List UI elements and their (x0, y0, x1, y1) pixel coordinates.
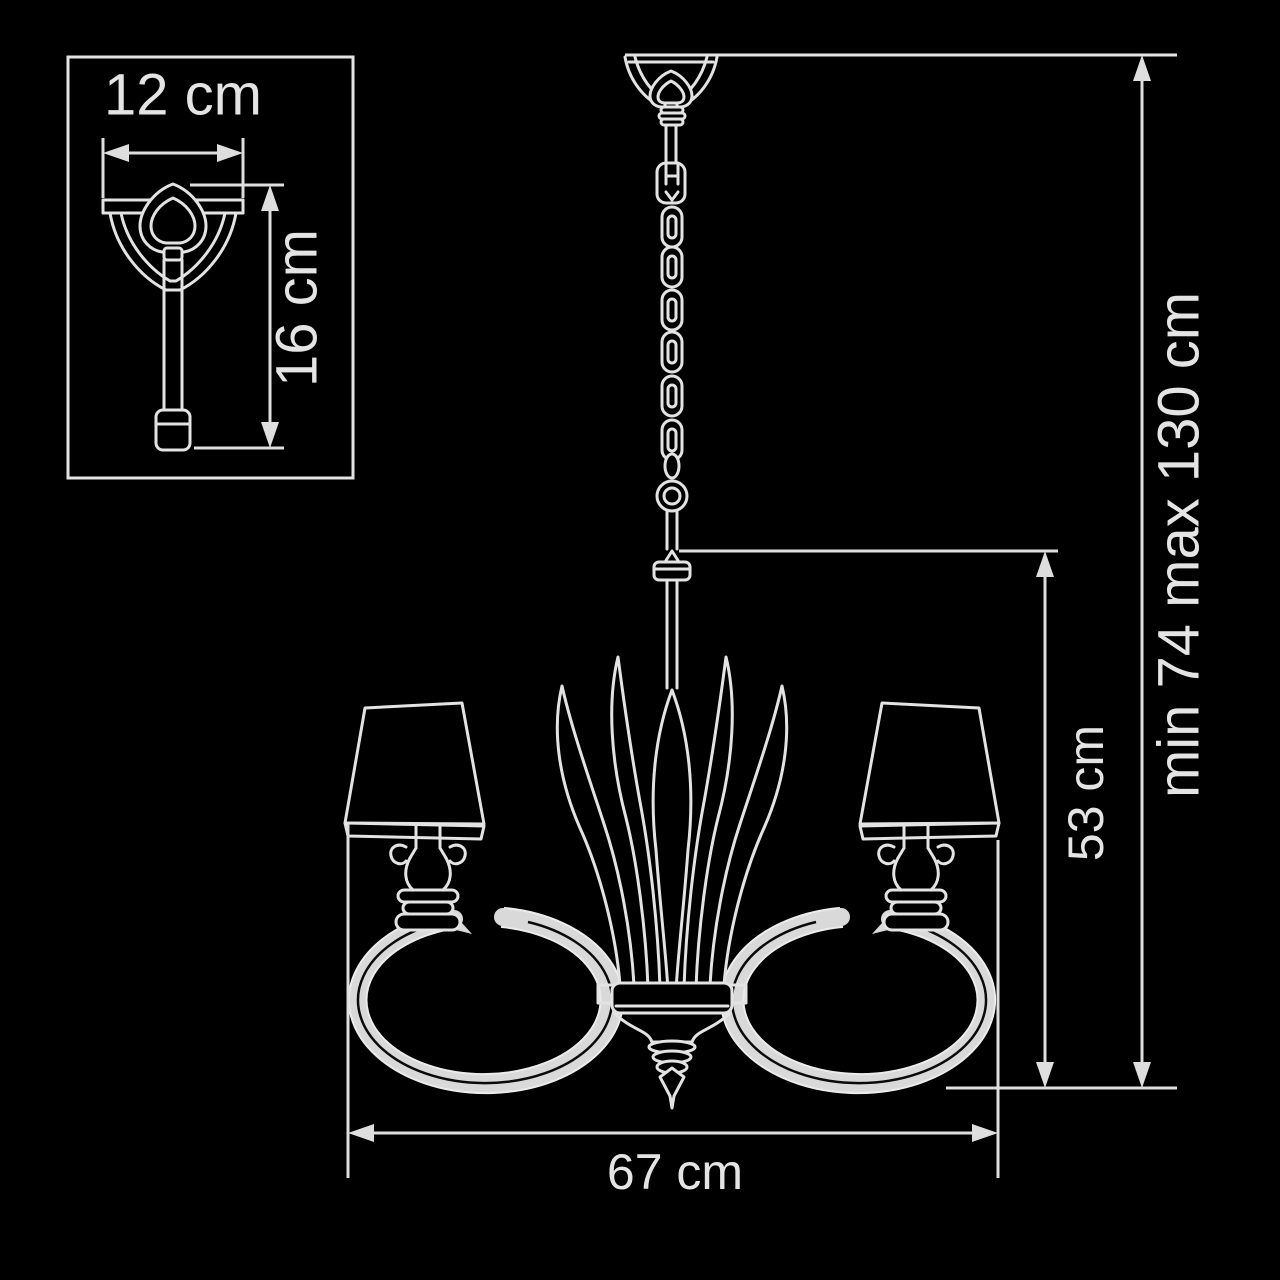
fixture-width-label: 67 cm (607, 1144, 743, 1200)
inset-height-label: 16 cm (265, 229, 330, 387)
suspension-range-label: min 74 max 130 cm (1147, 292, 1212, 798)
turnbuckle-connector (657, 163, 685, 203)
right-arm-ring (721, 908, 995, 1093)
dimension-diagram-page: 12 cm (0, 0, 1280, 1280)
center-hub (598, 983, 746, 1042)
right-lampshade (860, 703, 999, 824)
left-candle-holder (345, 703, 484, 930)
chain-link (662, 332, 682, 372)
rod-collar (654, 562, 690, 580)
mount-rod-end (156, 410, 190, 450)
chain-link (662, 290, 682, 330)
inset-width-label: 12 cm (104, 63, 262, 128)
chain-link (662, 376, 682, 416)
ceiling-mount-detail (103, 184, 243, 450)
chain-link (662, 207, 682, 247)
suspension-height-dimension: min 74 max 130 cm (1133, 55, 1212, 1088)
left-lampshade (345, 703, 484, 824)
suspension-rod (654, 511, 690, 688)
suspension-assembly (625, 57, 717, 688)
chandelier-dimension-diagram: 12 cm (0, 0, 1280, 1280)
ceiling-canopy (625, 57, 717, 163)
finial (649, 1041, 695, 1108)
right-candle-holder (860, 703, 999, 930)
left-arm-ring (349, 908, 623, 1093)
chain-link (662, 247, 682, 287)
body-height-label: 53 cm (1058, 725, 1114, 861)
chain (662, 207, 682, 478)
suspension-ring (657, 481, 687, 511)
inset-height-dimension: 16 cm (190, 185, 330, 448)
inset-detail-box: 12 cm (68, 57, 353, 478)
